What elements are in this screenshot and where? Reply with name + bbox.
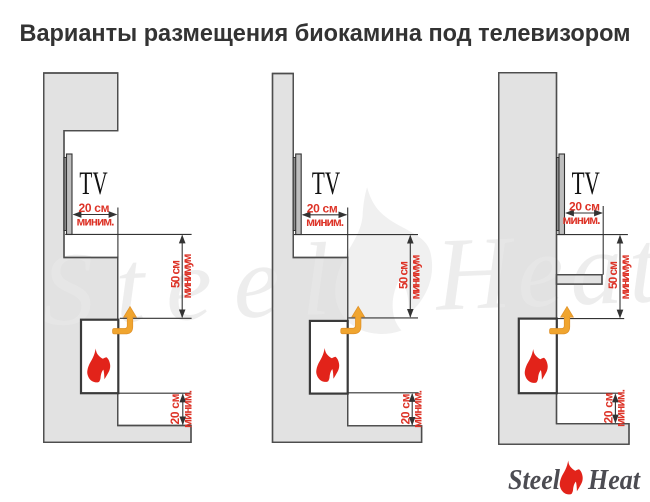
svg-text:20 см: 20 см xyxy=(79,201,110,215)
svg-text:минимум: минимум xyxy=(180,253,194,298)
svg-text:минимум: минимум xyxy=(618,254,632,299)
svg-text:минимум: минимум xyxy=(408,254,422,299)
svg-text:Варианты размещения биокамина: Варианты размещения биокамина под телеви… xyxy=(20,20,631,47)
svg-text:20 см: 20 см xyxy=(569,200,600,214)
svg-text:миним.: миним. xyxy=(306,215,344,229)
svg-text:TV: TV xyxy=(79,166,107,202)
svg-text:миним.: миним. xyxy=(77,215,115,229)
svg-text:TV: TV xyxy=(572,166,600,202)
svg-text:Heat: Heat xyxy=(587,465,641,496)
svg-text:миним.: миним. xyxy=(180,390,194,428)
svg-text:20 см: 20 см xyxy=(307,201,338,215)
svg-text:миним.: миним. xyxy=(613,389,627,427)
svg-text:TV: TV xyxy=(312,166,340,202)
svg-text:миним.: миним. xyxy=(411,390,425,428)
svg-text:Steel: Steel xyxy=(508,465,560,496)
svg-text:миним.: миним. xyxy=(563,213,601,227)
